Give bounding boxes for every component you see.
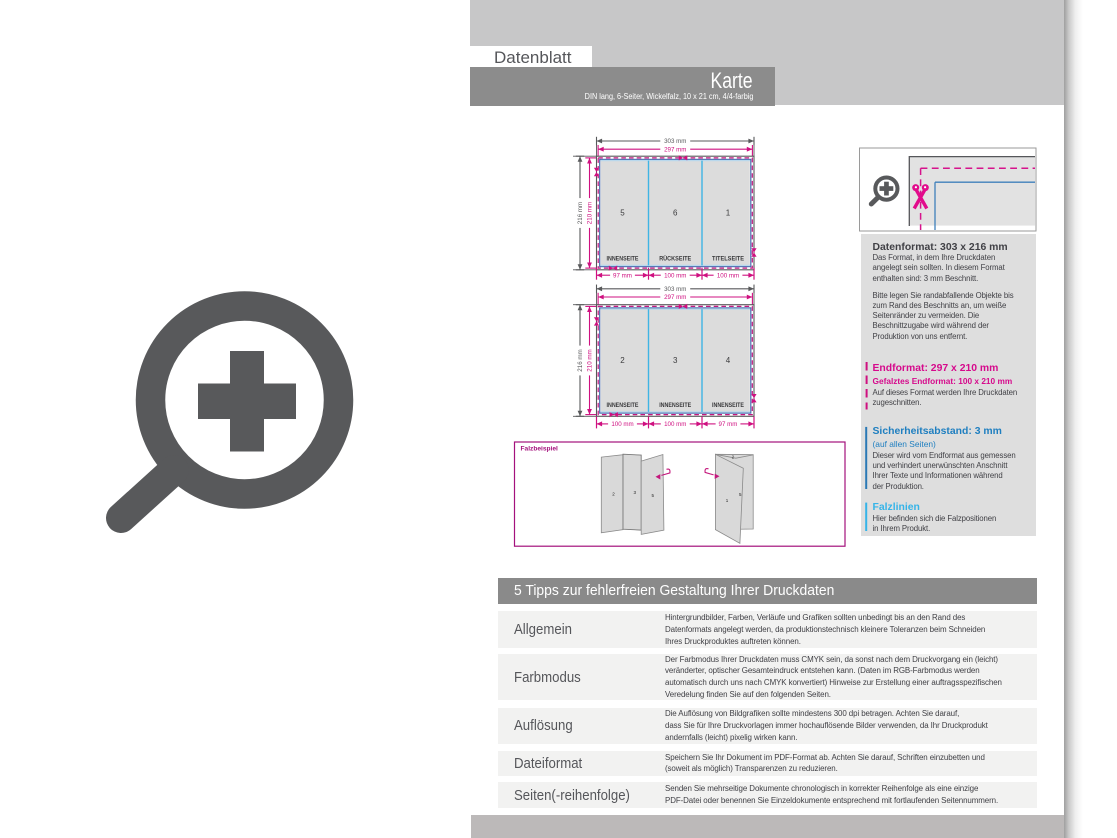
svg-text:303 mm: 303 mm <box>664 286 686 293</box>
svg-text:2: 2 <box>620 356 625 365</box>
svg-text:RÜCKSEITE: RÜCKSEITE <box>659 254 692 263</box>
svg-text:100 mm: 100 mm <box>664 421 686 428</box>
svg-text:210 mm: 210 mm <box>587 202 594 224</box>
svg-text:3: 3 <box>673 356 678 365</box>
svg-text:6: 6 <box>673 209 678 218</box>
svg-text:210 mm: 210 mm <box>587 349 594 371</box>
svg-text:TITELSEITE: TITELSEITE <box>712 256 745 263</box>
svg-text:216 mm: 216 mm <box>577 202 584 224</box>
svg-text:100 mm: 100 mm <box>611 421 633 428</box>
svg-text:Falzbeispiel: Falzbeispiel <box>521 446 559 453</box>
svg-text:INNENSEITE: INNENSEITE <box>607 402 640 409</box>
svg-text:297 mm: 297 mm <box>664 146 686 153</box>
svg-text:INNENSEITE: INNENSEITE <box>659 402 692 409</box>
svg-text:4: 4 <box>726 356 731 365</box>
svg-text:303 mm: 303 mm <box>664 138 686 145</box>
svg-text:5: 5 <box>620 209 625 218</box>
svg-text:216 mm: 216 mm <box>577 349 584 371</box>
svg-text:INNENSEITE: INNENSEITE <box>607 256 640 263</box>
svg-text:100 mm: 100 mm <box>664 273 686 280</box>
svg-text:97 mm: 97 mm <box>719 421 738 428</box>
svg-text:100 mm: 100 mm <box>717 273 739 280</box>
svg-text:297 mm: 297 mm <box>664 294 686 301</box>
svg-text:1: 1 <box>726 209 731 218</box>
svg-text:97 mm: 97 mm <box>613 273 632 280</box>
svg-text:INNENSEITE: INNENSEITE <box>712 402 745 409</box>
